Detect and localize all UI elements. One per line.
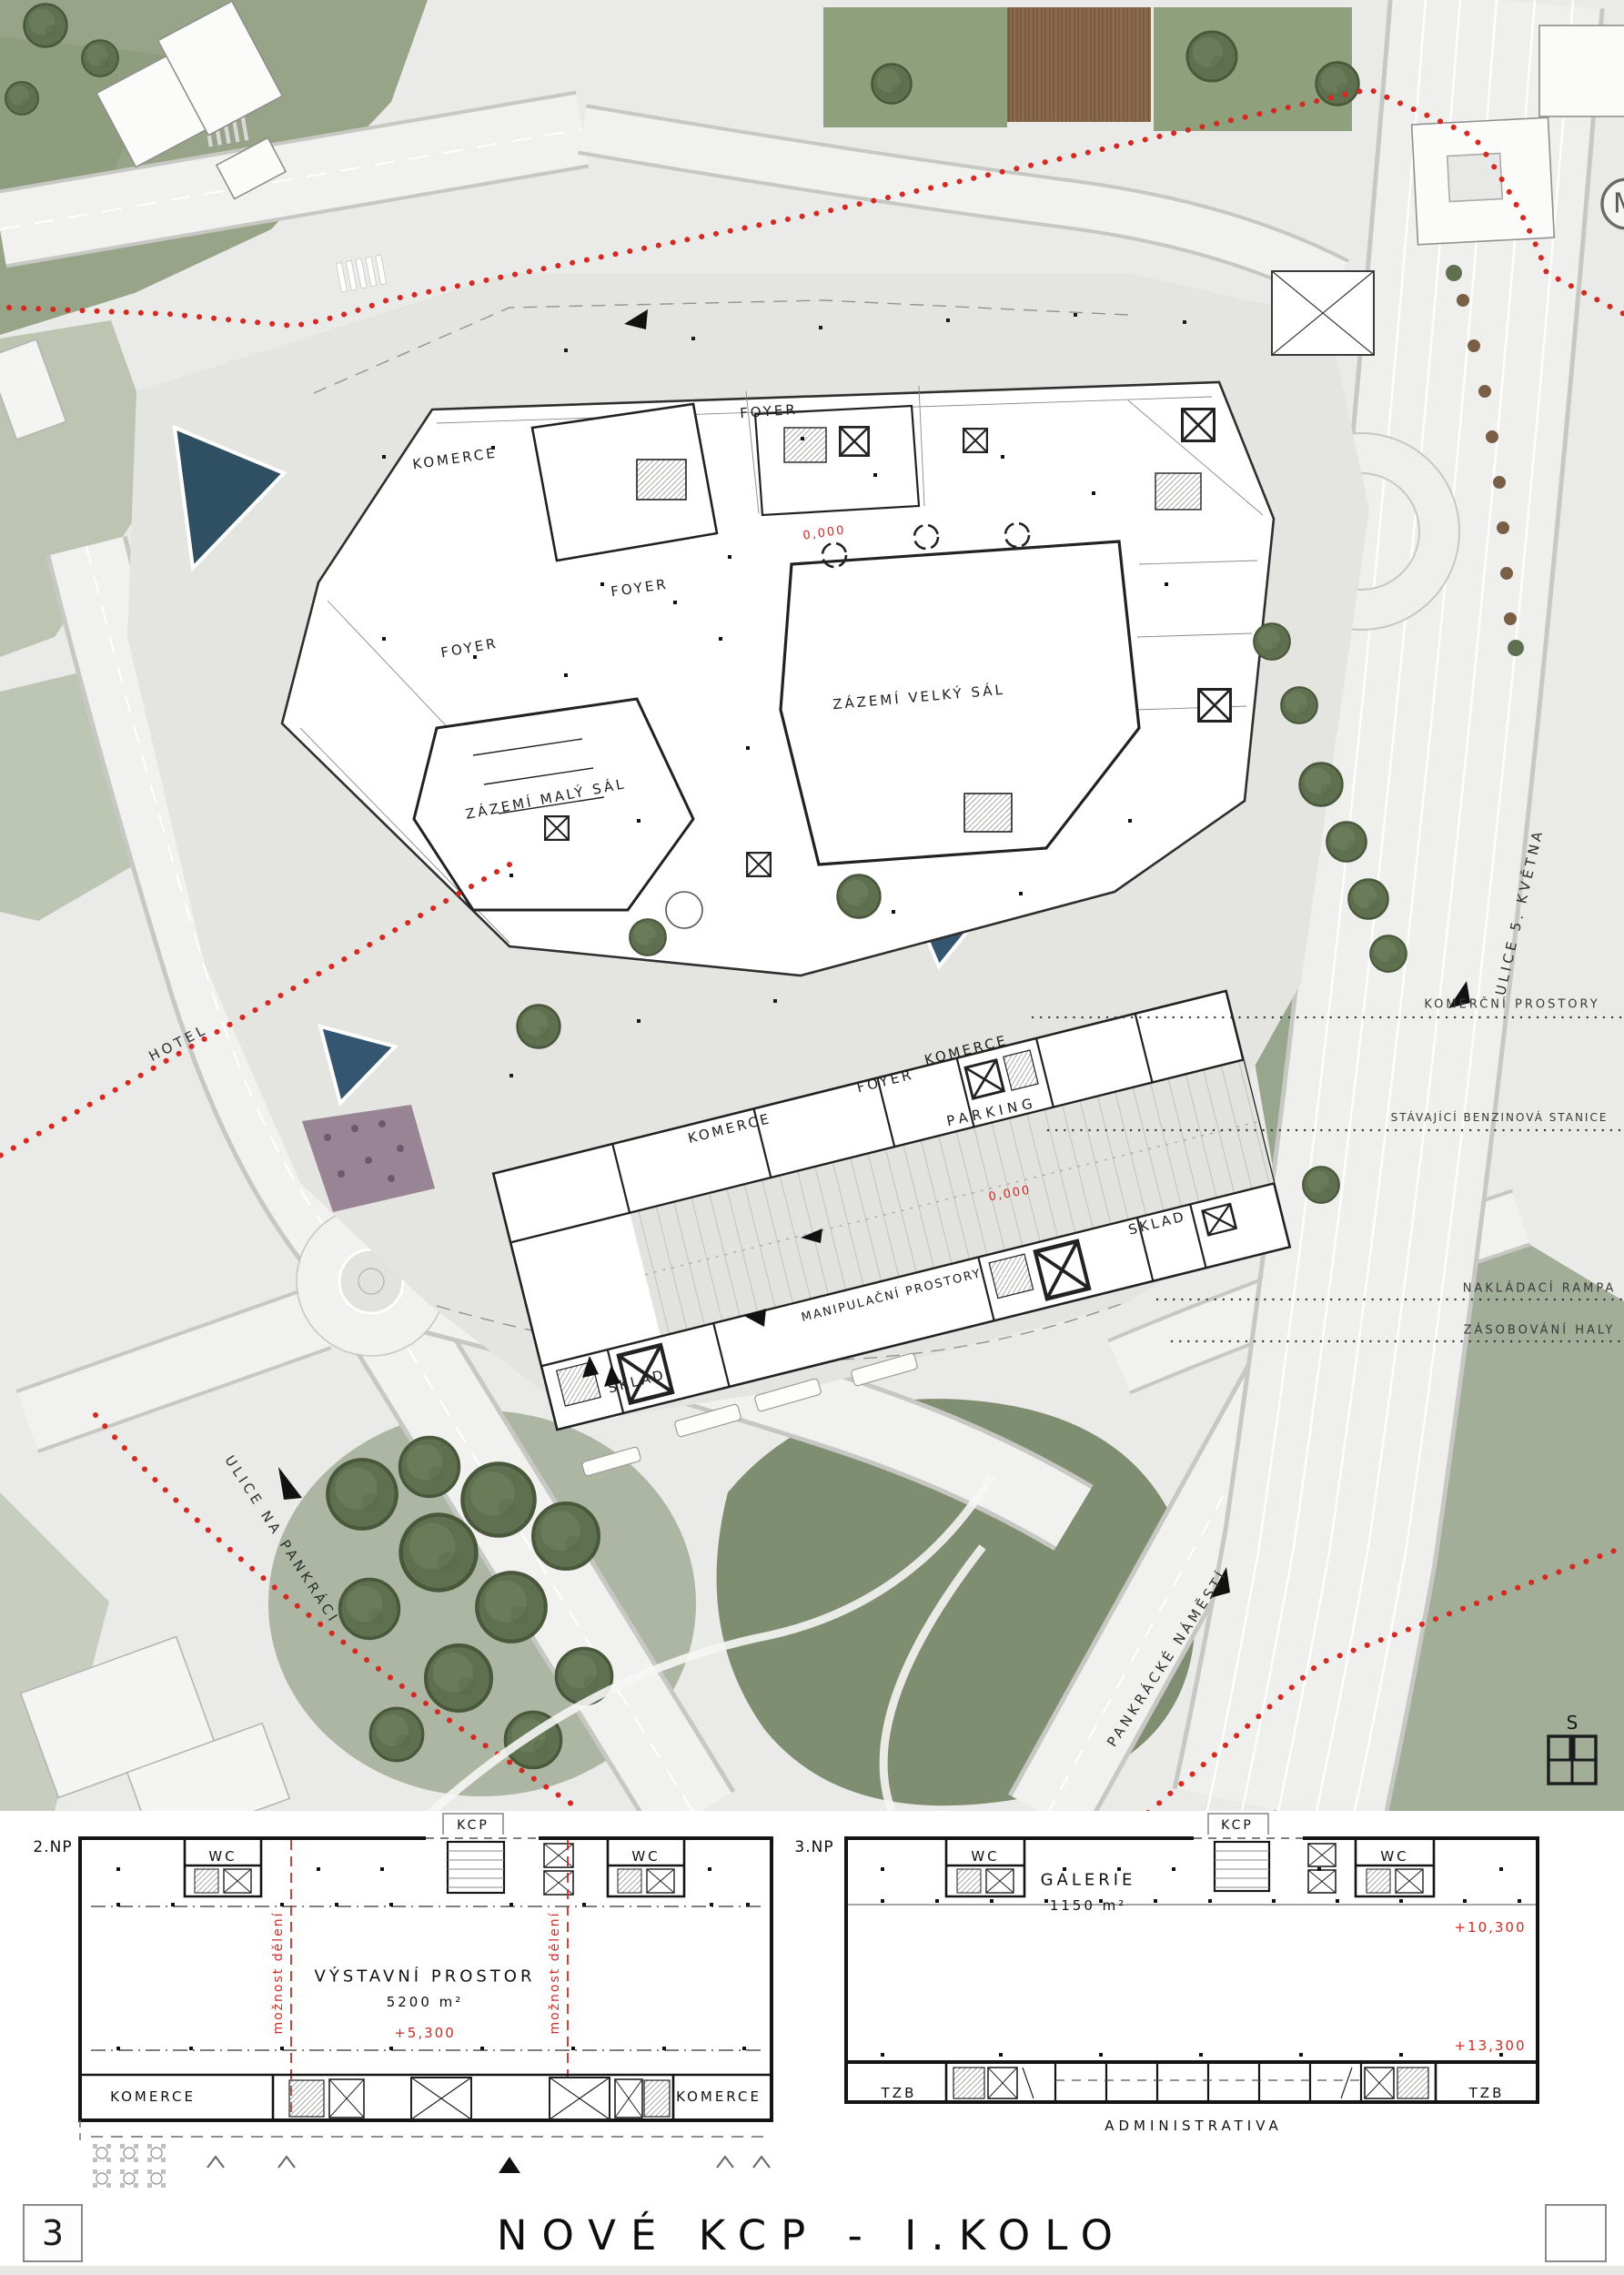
north-letter: S	[1567, 1712, 1579, 1734]
site-plan-drawing	[0, 0, 1624, 1811]
np2-komerce-left: KOMERCE	[110, 2088, 196, 2105]
np3-tzb-right: TZB	[1469, 2085, 1505, 2101]
label-nakladaci-rampa: NAKLÁDACÍ RAMPA	[1463, 1282, 1617, 1296]
np2-division-right: možnost dělení	[548, 1912, 562, 2035]
np3-elevation-upper: +10,300	[1454, 1919, 1526, 1936]
np3-wc-left: WC	[971, 1848, 999, 1865]
page-title: NOVÉ KCP - I.KOLO	[0, 2211, 1624, 2260]
empty-corner-box	[1545, 2204, 1607, 2262]
np2-wc-right: WC	[631, 1848, 660, 1865]
label-benzinova-stanice: STÁVAJÍCÍ BENZINOVÁ STANICE	[1391, 1111, 1609, 1124]
np3-tzb-left: TZB	[882, 2085, 917, 2101]
floor-plans-drawing	[0, 1811, 1624, 2202]
np3-area-label: 1150 m²	[1050, 1897, 1127, 1914]
competition-board: KOMERCE FOYER FOYER FOYER ZÁZEMÍ VELKÝ S…	[0, 0, 1624, 2275]
np2-elevation-label: +5,300	[394, 2025, 456, 2041]
np2-level-label: 2.NP	[33, 1838, 72, 1856]
np3-level-label: 3.NP	[794, 1838, 833, 1856]
np2-division-left: možnost dělení	[271, 1912, 286, 2035]
np3-elevation-lower: +13,300	[1454, 2037, 1526, 2054]
np2-wc-left: WC	[208, 1848, 237, 1865]
np3-kcp-label: KCP	[1221, 1818, 1254, 1833]
np3-wc-right: WC	[1380, 1848, 1408, 1865]
metro-letter: M	[1613, 188, 1624, 220]
np3-administrativa-label: ADMINISTRATIVA	[1105, 2118, 1283, 2134]
bottom-strip	[0, 2266, 1624, 2275]
plan-np3	[846, 1814, 1538, 2102]
np3-room-label: GALERIE	[1041, 1871, 1136, 1890]
label-komercni-prostory: KOMERČNÍ PROSTORY	[1424, 998, 1599, 1012]
np2-kcp-label: KCP	[457, 1818, 489, 1833]
np2-room-label: VÝSTAVNÍ PROSTOR	[315, 1967, 536, 1987]
loading-dock	[1272, 271, 1374, 355]
label-zasobovani-haly: ZÁSOBOVÁNÍ HALY	[1464, 1324, 1616, 1338]
np2-komerce-right: KOMERCE	[676, 2088, 762, 2105]
title-bar: 3 NOVÉ KCP - I.KOLO	[0, 2202, 1624, 2275]
np2-area-label: 5200 m²	[387, 1994, 464, 2010]
